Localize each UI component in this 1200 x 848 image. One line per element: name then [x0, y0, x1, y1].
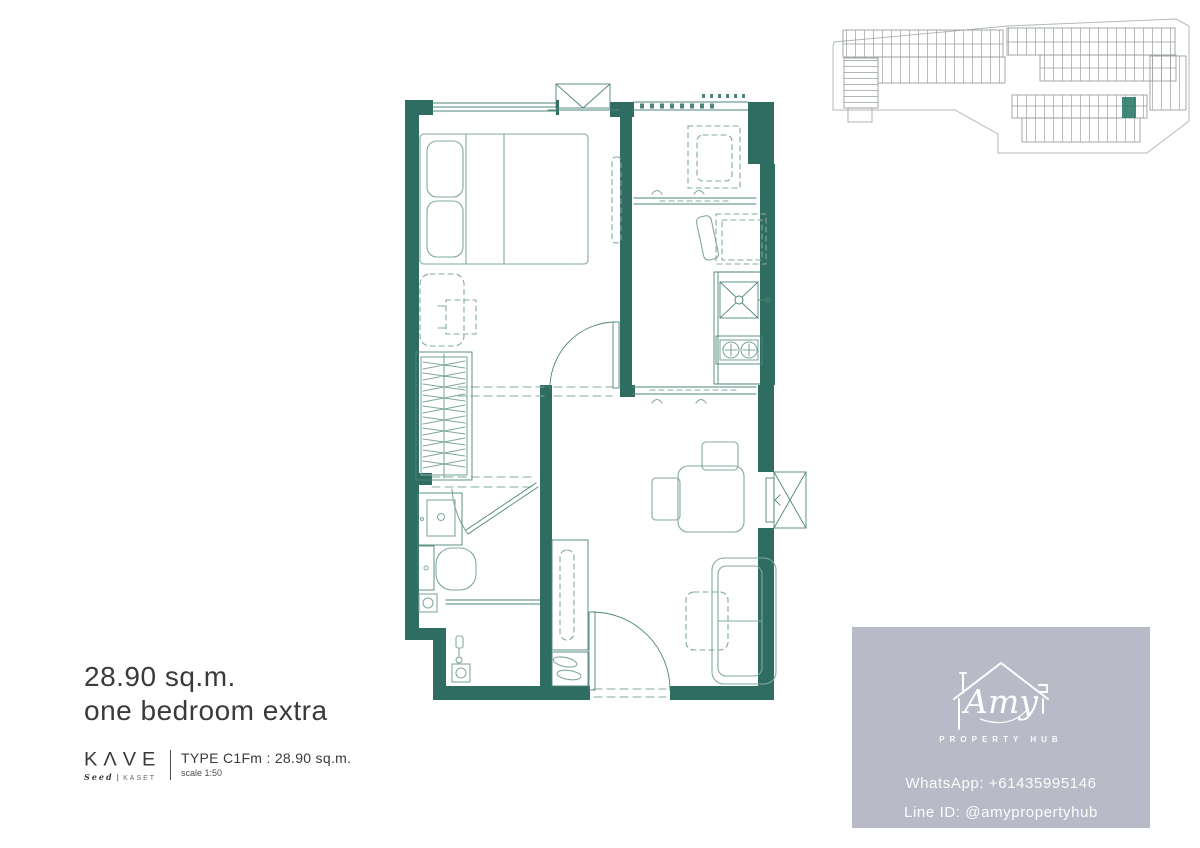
whatsapp-contact: WhatsApp: +61435995146	[852, 775, 1150, 792]
desk-and-chair	[696, 214, 766, 264]
title-block: 28.90 sq.m. one bedroom extra	[84, 660, 328, 728]
kave-logo: KΛVE Seed | KASET	[84, 750, 166, 782]
area-label: 28.90 sq.m.	[84, 660, 328, 694]
amy-logo-text: Amy	[961, 682, 1038, 721]
sliding-panel	[612, 157, 621, 243]
sliding-door-balcony	[634, 191, 756, 205]
wardrobe	[416, 352, 472, 480]
balcony-rails	[634, 96, 748, 110]
dining-set	[652, 442, 744, 532]
property-hub-tagline: PROPERTY HUB	[852, 735, 1150, 744]
scale-label: scale 1:50	[181, 768, 351, 778]
stove	[716, 336, 762, 364]
floor-drain	[419, 594, 437, 612]
sliding-door-kitchen	[632, 387, 756, 403]
house-logo-icon: Amy	[946, 653, 1056, 739]
kave-logo-subtext: Seed | KASET	[84, 772, 166, 782]
kave-kaset-label: KASET	[123, 775, 156, 782]
bedroom-door	[458, 322, 619, 396]
washing-machine	[688, 126, 740, 188]
type-block: TYPE C1Fm : 28.90 sq.m. scale 1:50	[181, 750, 351, 778]
bathroom-door	[432, 477, 538, 534]
site-key-plan	[833, 19, 1189, 153]
line-id-contact: Line ID: @amypropertyhub	[852, 804, 1150, 821]
shower-drain	[452, 664, 470, 682]
brand-divider	[170, 750, 171, 780]
highlighted-unit	[1122, 97, 1136, 118]
shower-partition	[446, 600, 540, 604]
contact-card: Amy PROPERTY HUB WhatsApp: +61435995146 …	[852, 627, 1150, 828]
vanity-sink	[418, 493, 462, 545]
page: 28.90 sq.m. one bedroom extra KΛVE Seed …	[0, 0, 1200, 848]
entrance-door	[589, 612, 670, 697]
unit-type-label: one bedroom extra	[84, 694, 328, 728]
brand-block: KΛVE Seed | KASET TYPE C1Fm : 28.90 sq.m…	[84, 750, 351, 782]
bedroom-bench	[420, 274, 476, 346]
shoe-cabinet	[552, 540, 588, 686]
shower-head	[456, 636, 463, 663]
shoes	[552, 655, 581, 681]
bed	[420, 134, 588, 264]
toilet	[418, 546, 476, 590]
unit-type-code: TYPE C1Fm : 28.90 sq.m.	[181, 750, 351, 766]
bedroom-window	[433, 103, 556, 111]
kave-sub-divider: |	[117, 773, 120, 782]
unit-plan	[405, 84, 806, 700]
ac-unit-right	[766, 472, 806, 528]
kave-seed-label: Seed	[84, 772, 114, 782]
kave-logo-wordmark: KΛVE	[84, 751, 166, 770]
